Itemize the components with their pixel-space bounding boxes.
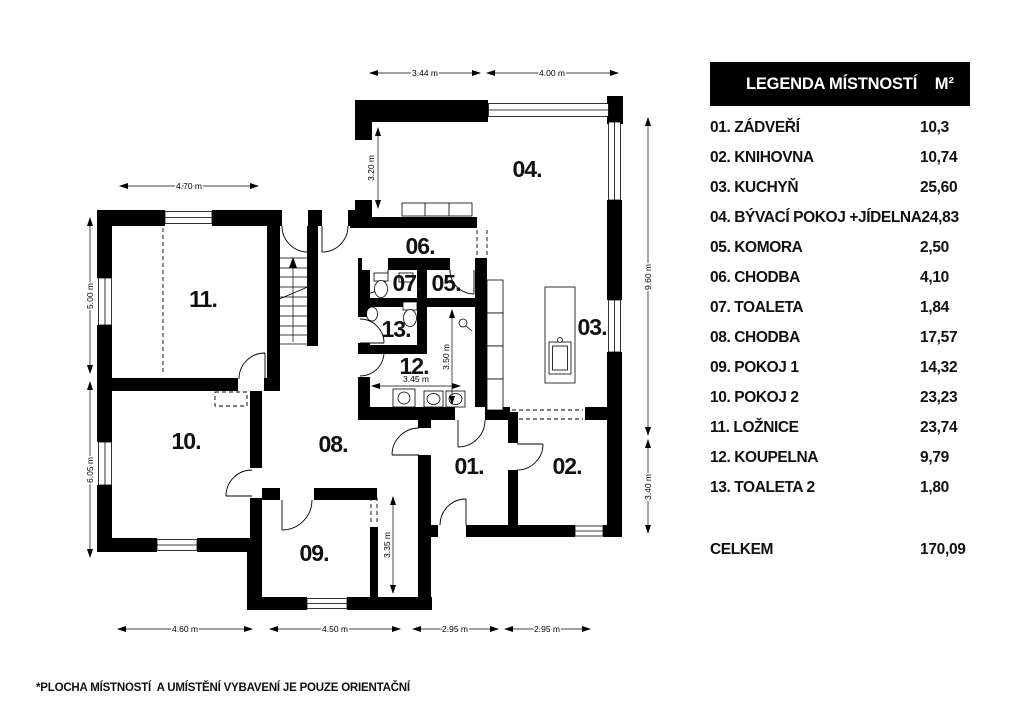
room-area: 4,10 [920, 269, 949, 287]
dim-label: 3.50 m [441, 344, 451, 370]
dim-label: 9.60 m [643, 264, 653, 290]
legend-row: 05. KOMORA2,50 [710, 233, 970, 263]
legend-row: 02. KNIHOVNA10,74 [710, 143, 970, 173]
legend-unit-label: M² [935, 75, 954, 94]
room-area: 23,23 [920, 389, 957, 407]
dim-label: 6.05 m [85, 457, 95, 483]
room-area: 2,50 [920, 239, 949, 257]
room-name: 12. KOUPELNA [710, 449, 920, 467]
room-label-10: 10. [172, 428, 201, 454]
stair-direction-arrow [289, 257, 297, 268]
room-name: 03. KUCHYŇ [710, 179, 920, 197]
legend-row: 07. TOALETA1,84 [710, 293, 970, 323]
page: { "legend": { "title": "LEGENDA MÍSTNOST… [0, 0, 1024, 724]
room-label-06: 06. [406, 233, 435, 259]
room-name: 01. ZÁDVEŘÍ [710, 119, 920, 137]
kitchen-island [545, 287, 575, 383]
dim-label: 5.00 m [85, 283, 95, 309]
dim-label: 2.95 m [442, 624, 468, 634]
legend-total-row: CELKEM 170,09 [710, 535, 970, 565]
total-value: 170,09 [920, 541, 966, 559]
legend-row: 08. CHODBA17,57 [710, 323, 970, 353]
kitchen-counter [487, 280, 503, 410]
dim-label: 4.00 m [539, 68, 565, 78]
room-name: 13. TOALETA 2 [710, 479, 920, 497]
sofa [402, 203, 472, 216]
legend-row: 13. TOALETA 21,80 [710, 473, 970, 503]
walls [97, 96, 623, 610]
room-label-07: 07. [393, 270, 422, 296]
room-label-05: 05. [432, 270, 461, 296]
room-label-09: 09. [300, 540, 329, 566]
room-label-11: 11. [189, 286, 217, 312]
room-area: 17,57 [920, 329, 957, 347]
footnote: *PLOCHA MÍSTNOSTÍ A UMÍSTĚNÍ VYBAVENÍ JE… [36, 682, 410, 694]
staircase [277, 257, 310, 344]
legend-row: 03. KUCHYŇ25,60 [710, 173, 970, 203]
room-area: 10,74 [920, 149, 957, 167]
room-label-02: 02. [553, 453, 582, 479]
room-area: 14,32 [920, 359, 957, 377]
legend-panel: LEGENDA MÍSTNOSTÍ M² 01. ZÁDVEŘÍ10,3 02.… [710, 62, 970, 565]
room-name: 10. POKOJ 2 [710, 389, 920, 407]
legend-row: 10. POKOJ 223,23 [710, 383, 970, 413]
room-label-08: 08. [319, 431, 348, 457]
dim-label: 2.95 m [534, 624, 560, 634]
room-label-12: 12. [400, 353, 429, 379]
legend-row: 04. BÝVACÍ POKOJ +JÍDELNA24,83 [710, 203, 970, 233]
legend-title: LEGENDA MÍSTNOSTÍ [746, 75, 917, 94]
room-area: 1,80 [920, 479, 949, 497]
room-area: 9,79 [920, 449, 949, 467]
room-label-01: 01. [455, 453, 484, 479]
room-name: 07. TOALETA [710, 299, 920, 317]
legend-row: 11. LOŽNICE23,74 [710, 413, 970, 443]
room-name: 06. CHODBA [710, 269, 920, 287]
room-label-04: 04. [513, 156, 542, 182]
legend-rows: 01. ZÁDVEŘÍ10,3 02. KNIHOVNA10,74 03. KU… [710, 113, 970, 503]
legend-row: 09. POKOJ 114,32 [710, 353, 970, 383]
room-label-03: 03. [578, 314, 607, 340]
room-area: 24,83 [922, 209, 959, 227]
room-area: 10,3 [920, 119, 949, 137]
room-name: 11. LOŽNICE [710, 419, 920, 437]
dim-label: 4.60 m [172, 624, 198, 634]
room-name: 04. BÝVACÍ POKOJ +JÍDELNA [710, 209, 922, 227]
dashed-openings [163, 228, 583, 525]
room-label-13: 13. [382, 316, 411, 342]
dim-label: 3.40 m [643, 474, 653, 500]
room-name: 02. KNIHOVNA [710, 149, 920, 167]
dim-label: 4.70 m [176, 181, 202, 191]
room-name: 08. CHODBA [710, 329, 920, 347]
dim-label: 3.35 m [382, 532, 392, 558]
dim-label: 3.44 m [412, 68, 438, 78]
legend-header: LEGENDA MÍSTNOSTÍ M² [710, 62, 970, 106]
legend-row: 12. KOUPELNA9,79 [710, 443, 970, 473]
legend-row: 01. ZÁDVEŘÍ10,3 [710, 113, 970, 143]
dim-label: 4.50 m [322, 624, 348, 634]
total-label: CELKEM [710, 541, 920, 559]
room-area: 25,60 [920, 179, 957, 197]
room-name: 09. POKOJ 1 [710, 359, 920, 377]
room-name: 05. KOMORA [710, 239, 920, 257]
room-area: 23,74 [920, 419, 957, 437]
dim-label: 3.20 m [366, 155, 376, 181]
room-area: 1,84 [920, 299, 949, 317]
legend-row: 06. CHODBA4,10 [710, 263, 970, 293]
